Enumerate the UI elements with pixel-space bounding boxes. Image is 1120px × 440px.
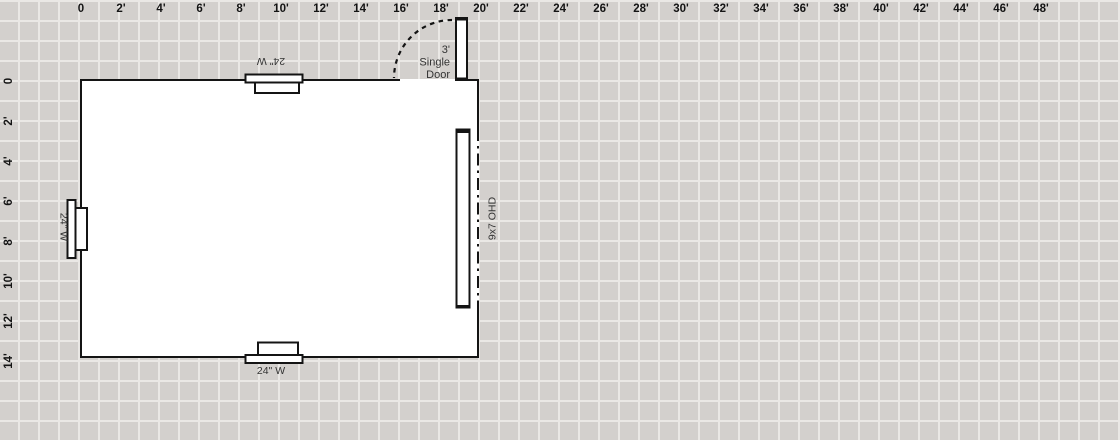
ruler-left-label: 10' bbox=[0, 272, 29, 290]
room-floor[interactable] bbox=[80, 79, 479, 358]
ruler-left-label: 14' bbox=[0, 352, 29, 370]
window-bottom-label: 24" W bbox=[257, 365, 285, 377]
door-label-line3: Door bbox=[426, 69, 450, 81]
ruler-left-label: 8' bbox=[0, 232, 29, 250]
ruler-top-label: 40' bbox=[861, 0, 901, 17]
ruler-top-label: 12' bbox=[301, 0, 341, 17]
ruler-top-label: 32' bbox=[701, 0, 741, 17]
ruler-top-label: 24' bbox=[541, 0, 581, 17]
ruler-top-label: 14' bbox=[341, 0, 381, 17]
window-frame[interactable] bbox=[246, 75, 303, 83]
ruler-left-label: 6' bbox=[0, 192, 29, 210]
ruler-top-label: 48' bbox=[1021, 0, 1061, 17]
door-label-line2: Single bbox=[419, 57, 450, 69]
ruler-top-label: 26' bbox=[581, 0, 621, 17]
ruler-top-label: 30' bbox=[661, 0, 701, 17]
window-top-label: 24" W bbox=[257, 55, 285, 67]
ruler-top-label: 22' bbox=[501, 0, 541, 17]
window-sash bbox=[76, 208, 88, 250]
ruler-left-label: 4' bbox=[0, 152, 29, 170]
window-sash bbox=[255, 83, 299, 94]
ruler-top-label: 10' bbox=[261, 0, 301, 17]
door-leaf[interactable] bbox=[456, 18, 467, 80]
ruler-top-label: 28' bbox=[621, 0, 661, 17]
ruler-top-label: 42' bbox=[901, 0, 941, 17]
ohd-label: 9x7 OHD bbox=[487, 196, 499, 240]
floor-plan: 3' Single Door 9x7 OHD 24" W 24" W 24" W bbox=[0, 0, 1120, 440]
building[interactable] bbox=[80, 79, 479, 358]
ruler-top-label: 46' bbox=[981, 0, 1021, 17]
ruler-top-label: 16' bbox=[381, 0, 421, 17]
ruler-top-label: 4' bbox=[141, 0, 181, 17]
ruler-top-label: 2' bbox=[101, 0, 141, 17]
ruler-top-label: 8' bbox=[221, 0, 261, 17]
window-sash bbox=[258, 343, 298, 356]
ruler-left-label: 0 bbox=[0, 72, 29, 90]
ruler-top-label: 44' bbox=[941, 0, 981, 17]
window-frame[interactable] bbox=[246, 355, 303, 363]
ruler-top-label: 6' bbox=[181, 0, 221, 17]
ruler-top-label: 20' bbox=[461, 0, 501, 17]
single-door[interactable]: 3' Single Door bbox=[394, 18, 468, 81]
design-canvas[interactable]: 3' Single Door 9x7 OHD 24" W 24" W 24" W bbox=[0, 0, 1120, 440]
ruler-left-label: 2' bbox=[0, 112, 29, 130]
ruler-top-label: 36' bbox=[781, 0, 821, 17]
ruler-left-label: 12' bbox=[0, 312, 29, 330]
ruler-top-label: 18' bbox=[421, 0, 461, 17]
ruler-top-label: 34' bbox=[741, 0, 781, 17]
ruler-top-label: 0 bbox=[61, 0, 101, 17]
window-left[interactable]: 24" W bbox=[58, 200, 88, 258]
door-label-line1: 3' bbox=[442, 44, 450, 56]
ruler-top-label: 38' bbox=[821, 0, 861, 17]
window-left-label: 24" W bbox=[58, 213, 70, 241]
ohd-panel[interactable] bbox=[457, 130, 470, 308]
